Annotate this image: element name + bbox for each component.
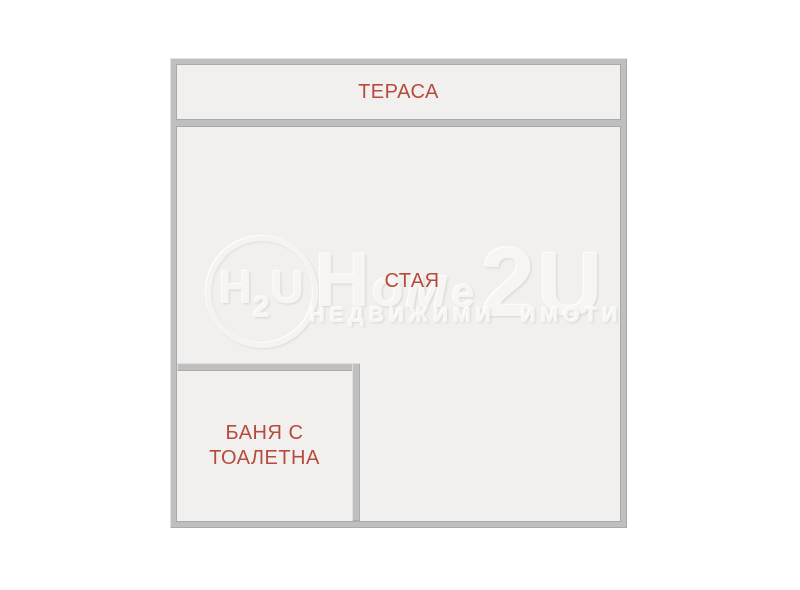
monogram-letter-u: U bbox=[271, 261, 305, 313]
floorplan-canvas: H2U H o м е 2 U НЕДВИЖИМИ ИМОТИ ТЕРАСА С… bbox=[0, 0, 800, 590]
room-terrace: ТЕРАСА bbox=[177, 65, 620, 119]
bathroom-wall-horizontal bbox=[177, 363, 360, 371]
bathroom-wall-vertical bbox=[352, 363, 360, 521]
room-label-bathroom-line1: БАНЯ С bbox=[226, 421, 304, 446]
room-bathroom: БАНЯ С ТОАЛЕТНА bbox=[177, 371, 352, 521]
room-label-living: СТАЯ bbox=[312, 267, 512, 295]
watermark-subtitle: НЕДВИЖИМИ ИМОТИ bbox=[310, 304, 623, 328]
watermark-monogram: H2U bbox=[219, 260, 305, 325]
monogram-letter-2: 2 bbox=[253, 291, 271, 324]
watermark-logo-icon: H2U bbox=[206, 236, 318, 348]
monogram-letter-h: H bbox=[219, 261, 253, 313]
room-label-terrace: ТЕРАСА bbox=[358, 80, 439, 105]
room-label-bathroom-line2: ТОАЛЕТНА bbox=[209, 446, 320, 471]
